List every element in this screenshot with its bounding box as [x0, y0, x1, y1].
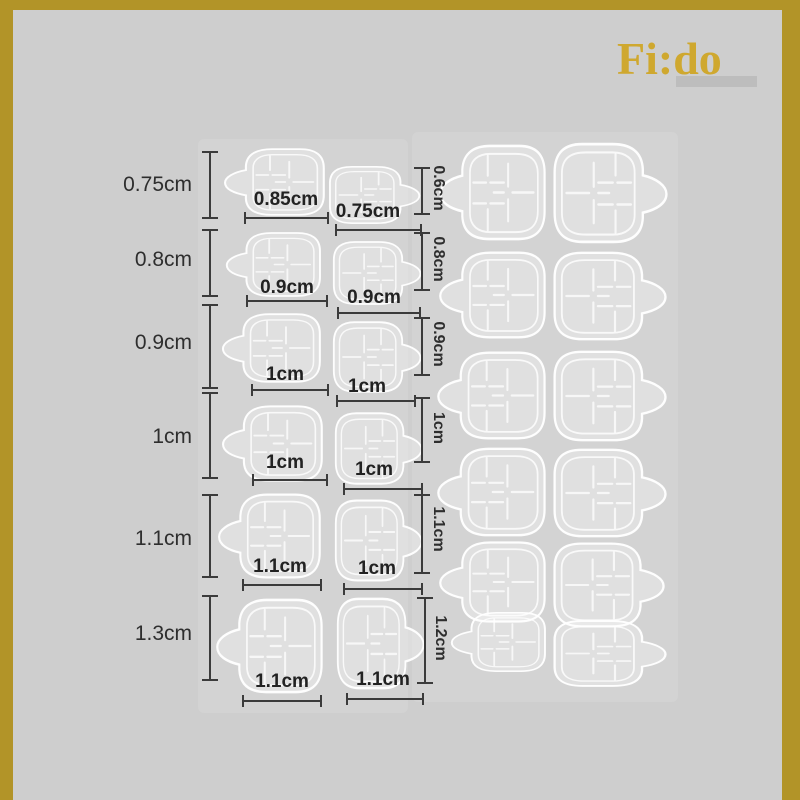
right-height-label-row2: 0.8cm [428, 224, 448, 294]
nail-shape-row4-col3 [434, 446, 548, 538]
width-label-row6-nail1: 1.1cm [237, 671, 327, 693]
height-label-row5: 1.1cm [104, 526, 192, 551]
width-measure-line-row5-nail2 [344, 588, 422, 590]
height-measure-line-row1 [209, 152, 211, 218]
nail-shape-row2-col4 [551, 250, 670, 342]
product-size-chart-image: Fi:do [0, 0, 800, 800]
right-height-measure-line-row2 [421, 233, 423, 290]
right-height-measure-line-row1 [421, 168, 423, 214]
nail-shape-row5-col4 [551, 541, 668, 629]
height-measure-line-row3 [209, 305, 211, 388]
width-measure-line-row4-nail1 [253, 479, 327, 481]
width-measure-line-row1-nail1 [245, 217, 328, 219]
nail-shape-row3-col4 [551, 349, 670, 443]
width-label-row3-nail1: 1cm [240, 364, 330, 386]
nail-shape-row6-col3 [448, 611, 548, 673]
height-label-row6: 1.3cm [104, 621, 192, 646]
right-height-label-row6: 1.2cm [430, 603, 450, 673]
right-height-label-row1: 0.6cm [428, 153, 448, 223]
width-label-row1-nail2: 0.75cm [323, 201, 413, 223]
width-label-row5-nail1: 1.1cm [235, 556, 325, 578]
width-measure-line-row2-nail2 [338, 312, 420, 314]
nail-shape-row3-col3 [434, 350, 548, 441]
width-label-row3-nail2: 1cm [322, 376, 412, 398]
gold-frame-left [0, 0, 13, 800]
gold-frame-top [0, 0, 800, 10]
width-measure-line-row6-nail1 [243, 700, 321, 702]
width-label-row6-nail2: 1.1cm [338, 669, 428, 691]
height-label-row4: 1cm [104, 424, 192, 449]
height-measure-line-row2 [209, 230, 211, 296]
nail-shape-row1-col3 [436, 143, 548, 242]
width-measure-line-row5-nail1 [243, 584, 321, 586]
width-measure-line-row1-nail2 [336, 229, 421, 231]
width-measure-line-row3-nail1 [252, 389, 328, 391]
right-height-label-row5: 1.1cm [428, 494, 448, 564]
gold-frame-right [782, 0, 800, 800]
brand-logo: Fi:do [617, 34, 722, 84]
nail-shape-row4-col4 [551, 447, 670, 539]
width-label-row4-nail2: 1cm [329, 459, 419, 481]
right-height-measure-line-row3 [421, 318, 423, 375]
width-label-row1-nail1: 0.85cm [241, 189, 331, 211]
width-measure-line-row6-nail2 [347, 698, 423, 700]
nail-shape-row6-col4 [551, 619, 670, 688]
width-label-row4-nail1: 1cm [240, 452, 330, 474]
width-label-row2-nail1: 0.9cm [242, 277, 332, 299]
height-measure-line-row4 [209, 393, 211, 478]
width-label-row5-nail2: 1cm [332, 558, 422, 580]
width-measure-line-row3-nail2 [337, 400, 415, 402]
nail-shape-row1-col4 [551, 141, 671, 245]
right-height-label-row4: 1cm [428, 393, 448, 463]
width-measure-line-row2-nail1 [247, 300, 327, 302]
right-height-measure-line-row4 [421, 398, 423, 462]
height-label-row3: 0.9cm [104, 330, 192, 355]
nail-shape-row2-col3 [436, 250, 548, 340]
right-height-label-row3: 0.9cm [428, 309, 448, 379]
width-measure-line-row4-nail2 [344, 488, 422, 490]
height-measure-line-row5 [209, 495, 211, 577]
height-label-row1: 0.75cm [104, 172, 192, 197]
width-label-row2-nail2: 0.9cm [329, 287, 419, 309]
height-measure-line-row6 [209, 596, 211, 680]
height-label-row2: 0.8cm [104, 247, 192, 272]
